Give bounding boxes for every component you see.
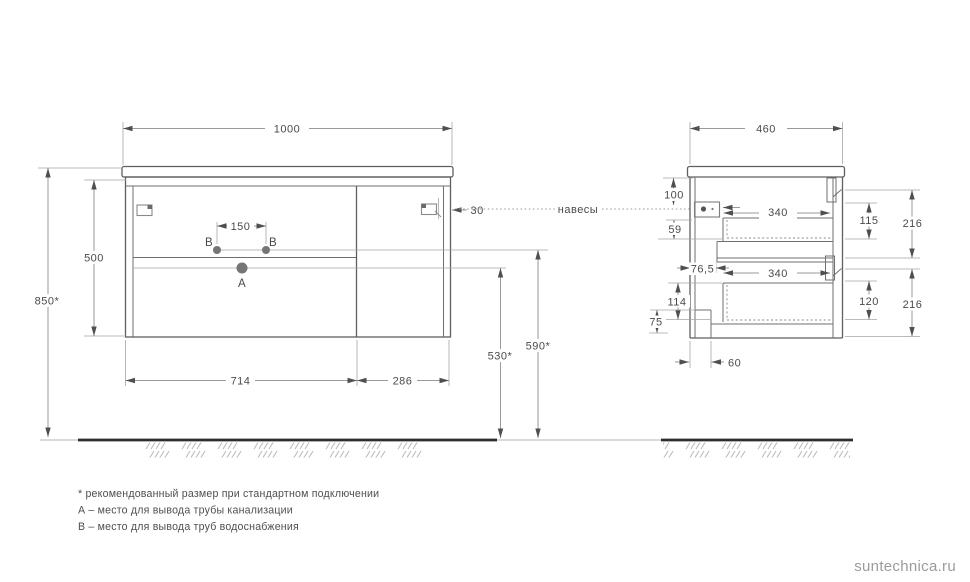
outlet-points: B B A xyxy=(133,237,548,290)
dim-500: 500 xyxy=(84,253,104,265)
dim-front-height-lower: 216 xyxy=(898,269,927,337)
dim-supply-height: 590* xyxy=(522,250,555,438)
floor-hatch-front xyxy=(140,443,432,458)
dim-back-offset: 76,5 xyxy=(677,262,729,276)
front-cabinet-body xyxy=(122,167,453,338)
hangers-callout: навесы xyxy=(455,204,690,216)
dim-286: 286 xyxy=(393,376,413,388)
dim-overall-height: 850* xyxy=(30,168,121,437)
vanity-technical-drawing-page: B B A 150 1000 850* xyxy=(0,0,970,582)
footnote-point-b: В – место для вывода труб водоснабжения xyxy=(78,521,299,533)
dim-supply-spacing: 150 xyxy=(217,220,266,244)
dim-cabinet-height: 500 xyxy=(80,180,126,336)
wall-hanger-icon xyxy=(695,202,741,217)
dim-216-upper: 216 xyxy=(903,218,923,230)
footnote-asterisk: * рекомендованный размер при стандартном… xyxy=(78,488,379,500)
dim-59: 59 xyxy=(668,224,681,236)
dim-bottom-clearance: 75 xyxy=(646,310,694,333)
dim-590: 590* xyxy=(526,341,551,353)
dim-width: 1000 xyxy=(123,121,452,165)
dim-30: 30 xyxy=(471,205,484,217)
dim-150: 150 xyxy=(231,221,251,233)
dim-drain-height: 530* xyxy=(484,268,517,438)
dim-toe-recess: 60 xyxy=(675,341,741,370)
dim-front-height-upper: 216 xyxy=(898,190,927,258)
floor-hatch-side xyxy=(663,443,850,458)
dim-drawer-inner-lower: 120 xyxy=(855,281,883,320)
dim-340-upper: 340 xyxy=(768,207,788,219)
lower-drawer xyxy=(695,283,833,338)
technical-drawing: B B A 150 1000 850* xyxy=(0,0,970,582)
point-b-left xyxy=(213,246,221,254)
side-right-extensions xyxy=(845,190,920,337)
label-b-right: B xyxy=(269,237,277,249)
hanger-icon-left xyxy=(137,205,152,216)
dim-714: 714 xyxy=(231,376,251,388)
dim-drawer-depth-lower: 340 xyxy=(724,267,831,281)
dim-75: 75 xyxy=(649,317,662,329)
dim-114: 114 xyxy=(667,297,686,309)
dim-460: 460 xyxy=(756,124,776,136)
dim-drawer-inner-upper: 115 xyxy=(855,203,883,239)
dim-depth: 460 xyxy=(690,121,843,164)
label-b-left: B xyxy=(205,237,213,249)
hangers-label: навесы xyxy=(558,204,598,216)
upper-drawer xyxy=(717,218,833,262)
dim-216-lower: 216 xyxy=(903,299,923,311)
watermark: suntechnica.ru xyxy=(854,558,956,575)
side-top-bracket xyxy=(827,178,836,202)
dim-850: 850* xyxy=(35,296,60,308)
dim-340-lower: 340 xyxy=(768,268,788,280)
dim-530: 530* xyxy=(488,351,513,363)
floor xyxy=(40,440,853,458)
dim-1000: 1000 xyxy=(274,124,300,136)
hanger-icon-right xyxy=(422,204,442,217)
side-view: 460 100 59 76,5 340 xyxy=(646,121,927,370)
footnote-point-a: А – место для вывода трубы канализации xyxy=(78,505,293,517)
side-countertop xyxy=(688,167,845,178)
point-a xyxy=(237,263,248,274)
dim-sections: 714 286 xyxy=(126,340,450,388)
footnotes: * рекомендованный размер при стандартном… xyxy=(78,488,379,533)
dim-115: 115 xyxy=(859,215,878,227)
dim-100: 100 xyxy=(664,190,684,202)
dim-60: 60 xyxy=(728,358,741,370)
dim-top-to-hanger: 100 xyxy=(662,178,693,205)
label-a: A xyxy=(238,278,246,290)
dim-76-5: 76,5 xyxy=(691,264,714,276)
front-view: B B A 150 1000 850* xyxy=(30,121,555,438)
dim-120: 120 xyxy=(859,296,879,308)
front-countertop xyxy=(122,167,453,178)
